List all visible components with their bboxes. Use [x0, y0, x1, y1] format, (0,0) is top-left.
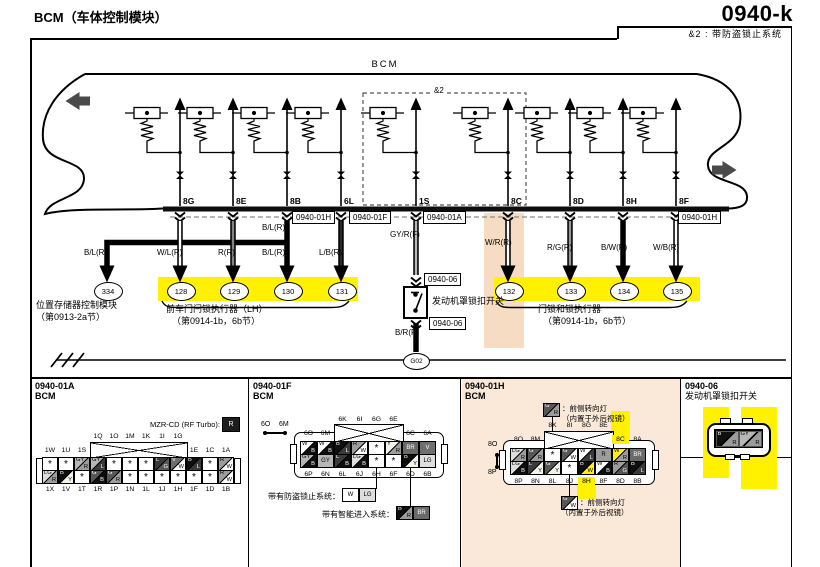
pin-cell: *: [122, 457, 138, 471]
pin-label: 8L: [544, 477, 561, 486]
pin-cell: LGR: [42, 470, 58, 484]
pin-label: 1O: [106, 432, 122, 441]
pin-cell: RW: [351, 441, 368, 455]
pin-cell: GY: [317, 454, 334, 468]
pin-label: 6C: [402, 429, 419, 438]
pin-cell: *: [561, 461, 578, 475]
pin-cell: *: [170, 470, 186, 484]
pin-cell: *: [74, 470, 90, 484]
wire-label-br: B/R(F): [395, 328, 419, 337]
wire-label-wb: W/B(R): [653, 243, 679, 252]
circle-133: 133: [557, 282, 586, 301]
pin-label: 1D: [202, 485, 218, 494]
pin-label: 1Q: [90, 432, 106, 441]
panel-a-name: BCM: [35, 391, 56, 401]
pin-8b: 8B: [290, 196, 301, 206]
panel-h-bottom-labels: 8P8N8L8J8H8F8D8B: [510, 477, 646, 486]
pin-label: 1F: [186, 485, 202, 494]
pin-cell: *: [138, 457, 154, 471]
panel-a-row1: **GYRGYL***LGVWBL*RW: [42, 457, 234, 471]
variant-cell: W: [342, 488, 359, 502]
wire-label-lb: L/B(R): [319, 248, 342, 257]
panel-f-name: BCM: [253, 391, 274, 401]
pin-label: 1W: [42, 446, 58, 455]
label-door-lock-2: （第0914-1b，6b节）: [543, 315, 631, 327]
panel-a-mzr-label: MZR-CD (RF Turbo):: [150, 420, 220, 429]
pin-label: 6O: [300, 429, 317, 438]
pin-cell: *: [186, 470, 202, 484]
variant-cell: LG: [359, 488, 376, 502]
pin-6l: 6L: [344, 196, 354, 206]
pin-label: 1J: [154, 485, 170, 494]
panel-f-ear-right: [441, 444, 448, 464]
label-memory-module-2: （第0913-2a节）: [36, 311, 105, 323]
pin-label: 6K: [334, 415, 351, 424]
pin-cell: *: [368, 454, 385, 468]
circle-135: 135: [663, 282, 692, 301]
pin-label: 8C: [612, 435, 629, 444]
pin-label: 1G: [170, 432, 186, 441]
pin-cell: *: [368, 441, 385, 455]
circle-128: 128: [167, 282, 196, 301]
panel-f-note2-line: [410, 467, 411, 507]
pin-label: 1B: [218, 485, 234, 494]
panel-f-note1-cells: WLG: [342, 488, 376, 502]
pin-cell: LGB: [510, 461, 527, 475]
connector-ref-06-top: 0940-06: [424, 273, 461, 286]
pin-label: 8G: [578, 421, 595, 430]
panel-s06-id: 0940-06: [685, 381, 718, 391]
pin-label: 6I: [351, 415, 368, 424]
pin-8g: 8G: [183, 196, 194, 206]
pin-cell: BR: [716, 431, 739, 447]
pin-label: 6J: [351, 470, 368, 479]
pin-cell: BW: [578, 461, 595, 475]
pin-cell: LGR: [510, 448, 527, 462]
pin-cell: *: [202, 457, 218, 471]
panel-f-bottom-labels: 6P6N6L6J6H6F6D6B: [300, 470, 436, 479]
pin-cell: *: [138, 470, 154, 484]
pin-label: 1S: [74, 446, 90, 455]
panel-h-name: BCM: [465, 391, 486, 401]
pin-cell: BY: [402, 454, 419, 468]
manual-page: { "header": { "title_left": "BCM（车体控制模块）…: [0, 0, 820, 567]
panel-f-note2-label: 带有智能进入系统：: [294, 509, 394, 520]
pin-cell: GYL: [90, 457, 106, 471]
pin-cell: WR: [612, 448, 629, 462]
bcm-module-label: BCM: [360, 59, 410, 70]
pin-cell: VW: [170, 457, 186, 471]
circle-130: 130: [274, 282, 303, 301]
pin-label: 8O: [510, 435, 527, 444]
variant-cell: BR: [413, 506, 430, 520]
pin-cell: RW: [218, 470, 234, 484]
pin-label: 1P: [106, 485, 122, 494]
circle-131: 131: [328, 282, 357, 301]
pin-cell: LG: [419, 454, 436, 468]
pin-8d: 8D: [573, 196, 584, 206]
panel-h-ear-left: [499, 450, 506, 470]
pin-label: 1N: [122, 485, 138, 494]
pin-cell: RG: [612, 461, 629, 475]
pin-label: 6L: [334, 470, 351, 479]
panel-a-ear-right: [234, 458, 241, 484]
label-memory-module-1: 位置存储器控制模块: [36, 299, 117, 311]
panel-f-side-b: 6M: [279, 421, 289, 428]
pin-label: 1C: [202, 446, 218, 455]
wire-label-bl-upper: B/L(R): [262, 223, 285, 232]
pin-label: 6F: [385, 470, 402, 479]
panel-f-side-a: 6O: [261, 421, 270, 428]
pin-label: 8I: [561, 421, 578, 430]
pin-cell: BL: [186, 457, 202, 471]
label-door-lock-1: 门锁和锁执行器: [538, 303, 601, 315]
pin-label: 8A: [629, 435, 646, 444]
pin-8h: 8H: [626, 196, 637, 206]
pin-cell: GB: [90, 470, 106, 484]
pin-8c: 8C: [511, 196, 522, 206]
pin-cell: WB: [300, 441, 317, 455]
pin-cell: LB: [334, 454, 351, 468]
panel-s06-foot-right: [740, 454, 750, 460]
pin-cell: YR: [385, 441, 402, 455]
pin-label: 8K: [544, 421, 561, 430]
panel-f-row1: WBWBBLRW*YRBRV: [300, 441, 436, 455]
panel-a-id: 0940-01A: [35, 381, 75, 391]
pin-label: 6G: [368, 415, 385, 424]
pin-label: 1K: [138, 432, 154, 441]
amp2-group-label: &2: [432, 86, 446, 95]
wire-label-bw: B/W(R): [601, 243, 627, 252]
pin-cell: LGB: [351, 454, 368, 468]
pin-label: 8E: [595, 421, 612, 430]
pin-label: 8M: [527, 435, 544, 444]
circle-129: 129: [220, 282, 249, 301]
pin-cell: GYR: [739, 431, 762, 447]
wire-label-bl-lower: B/L(R): [262, 248, 285, 257]
circle-334: 334: [94, 282, 123, 301]
wire-label-rg: R/G(R): [547, 243, 572, 252]
panel-h-note-top-cell: GR: [543, 403, 560, 417]
panel-f-row2: GYBGYLBLGB**BYLG: [300, 454, 436, 468]
panel-a-bottom-labels: 1X1V1T1R1P1N1L1J1H1F1D1B: [42, 485, 234, 494]
panel-f-top-labels: 6O6M6K6I6G6E6C6A: [300, 429, 436, 438]
panel-f-note1-label: 带有防盗锁止系统：: [240, 491, 340, 502]
pin-label: 1H: [170, 485, 186, 494]
panel-a-top-labels: 1W1U1S1Q1O1M1K1I1G1E1C1A: [42, 446, 234, 455]
pin-cell: V: [419, 441, 436, 455]
wire-label-wl: W/L(R): [157, 248, 182, 257]
panel-h-note-bottom-2: （内置于外后视镜）: [561, 507, 629, 518]
connector-ref-01f: 0940-01F: [349, 211, 391, 224]
pin-cell: WL: [578, 448, 595, 462]
panel-s06-cells: BRGYR: [714, 429, 763, 448]
pin-cell: GY: [544, 461, 561, 475]
pin-label: 1R: [90, 485, 106, 494]
pin-cell: BL: [629, 461, 646, 475]
pin-cell: *: [385, 454, 402, 468]
pin-label: 8F: [595, 477, 612, 486]
pin-cell: LG: [154, 457, 170, 471]
pin-label: 6E: [385, 415, 402, 424]
pin-cell: WB: [595, 461, 612, 475]
connector-ref-01h: 0940-01H: [292, 211, 335, 224]
label-door-latch-2: （第0914-1b，6b节）: [172, 315, 260, 327]
pin-8e: 8E: [236, 196, 246, 206]
panel-f-jumper-dot-2: [283, 431, 287, 435]
panel-h-side-bottom: 8P: [488, 469, 497, 476]
pin-cell: WB: [317, 441, 334, 455]
panel-f-jumper-dot-1: [263, 431, 267, 435]
pin-cell: GR: [106, 470, 122, 484]
pin-label: 8P: [510, 477, 527, 486]
pin-label: 1A: [218, 446, 234, 455]
pin-label: 1U: [58, 446, 74, 455]
connector-ref-06-bottom: 0940-06: [429, 317, 466, 330]
pin-cell: BL: [334, 441, 351, 455]
panel-h-side-top: 8O: [488, 441, 497, 448]
panel-s06-foot-left: [725, 454, 735, 460]
panel-a-mzr-box: R: [222, 417, 240, 432]
pin-cell: *: [58, 457, 74, 471]
pin-cell: *: [106, 457, 122, 471]
ground-g02: G02: [403, 353, 430, 370]
panel-h-id: 0940-01H: [465, 381, 505, 391]
pin-cell: *: [42, 457, 58, 471]
pin-1s: 1S: [419, 196, 429, 206]
pin-cell: *: [154, 470, 170, 484]
panel-h-row1: LGRGR*GWWLRWRBR: [510, 448, 646, 462]
pin-cell: *: [122, 470, 138, 484]
pin-label: 6B: [419, 470, 436, 479]
label-door-latch-1: 前车门闩锁执行器（LH）: [166, 303, 268, 315]
pin-cell: LY: [527, 461, 544, 475]
pin-label: 8N: [527, 477, 544, 486]
label-hood-switch: 发动机罩锁扣开关: [432, 295, 504, 307]
panel-s06-name: 发动机罩锁扣开关: [685, 391, 757, 401]
pin-cell: BY: [58, 470, 74, 484]
pin-label: 8B: [629, 477, 646, 486]
panel-h-ear-right: [652, 450, 659, 470]
pin-cell: *: [544, 448, 561, 462]
pin-cell: GYB: [300, 454, 317, 468]
connector-ref-01h-2: 0940-01H: [678, 211, 721, 224]
variant-cell: GR: [543, 403, 560, 417]
pin-label: 1V: [58, 485, 74, 494]
connector-ref-01a: 0940-01A: [423, 211, 466, 224]
pin-8f: 8F: [679, 196, 689, 206]
pin-label: 1X: [42, 485, 58, 494]
pin-cell: R: [595, 448, 612, 462]
variant-cell: BR: [396, 506, 413, 520]
pin-cell: BR: [402, 441, 419, 455]
wire-label-bl-334: B/L(R): [84, 248, 107, 257]
pin-cell: *: [202, 470, 218, 484]
pin-cell: GR: [527, 448, 544, 462]
panel-f-note2-cells: BRBR: [396, 506, 430, 520]
panel-f-ear-left: [290, 444, 297, 464]
circle-134: 134: [610, 282, 639, 301]
pin-cell: BR: [629, 448, 646, 462]
panel-f-note1-line: [376, 467, 377, 489]
wire-label-r: R(R): [218, 248, 235, 257]
pin-label: 6A: [419, 429, 436, 438]
pin-label: 1L: [138, 485, 154, 494]
pin-label: 6N: [317, 470, 334, 479]
panel-h-row2: LGBLYGY*BWWBRGBL: [510, 461, 646, 475]
pin-label: 1T: [74, 485, 90, 494]
panel-h-top-labels: 8O8M8K8I8G8E8C8A: [510, 435, 646, 444]
pin-label: 8H: [578, 477, 595, 486]
pin-label: 1E: [186, 446, 202, 455]
panel-h-note-bottom-line: [569, 474, 570, 496]
wire-label-gyr: GY/R(F): [390, 230, 420, 239]
pin-cell: GW: [561, 448, 578, 462]
pin-cell: RW: [218, 457, 234, 471]
panel-a-row2: LGRBY*GBGR******RW: [42, 470, 234, 484]
panel-f-id: 0940-01F: [253, 381, 292, 391]
pin-label: 1I: [154, 432, 170, 441]
pin-label: 1M: [122, 432, 138, 441]
pin-cell: GYR: [74, 457, 90, 471]
pin-label: 8D: [612, 477, 629, 486]
wire-label-wr: W/R(R): [485, 238, 512, 247]
pin-label: 6P: [300, 470, 317, 479]
pin-label: 6M: [317, 429, 334, 438]
